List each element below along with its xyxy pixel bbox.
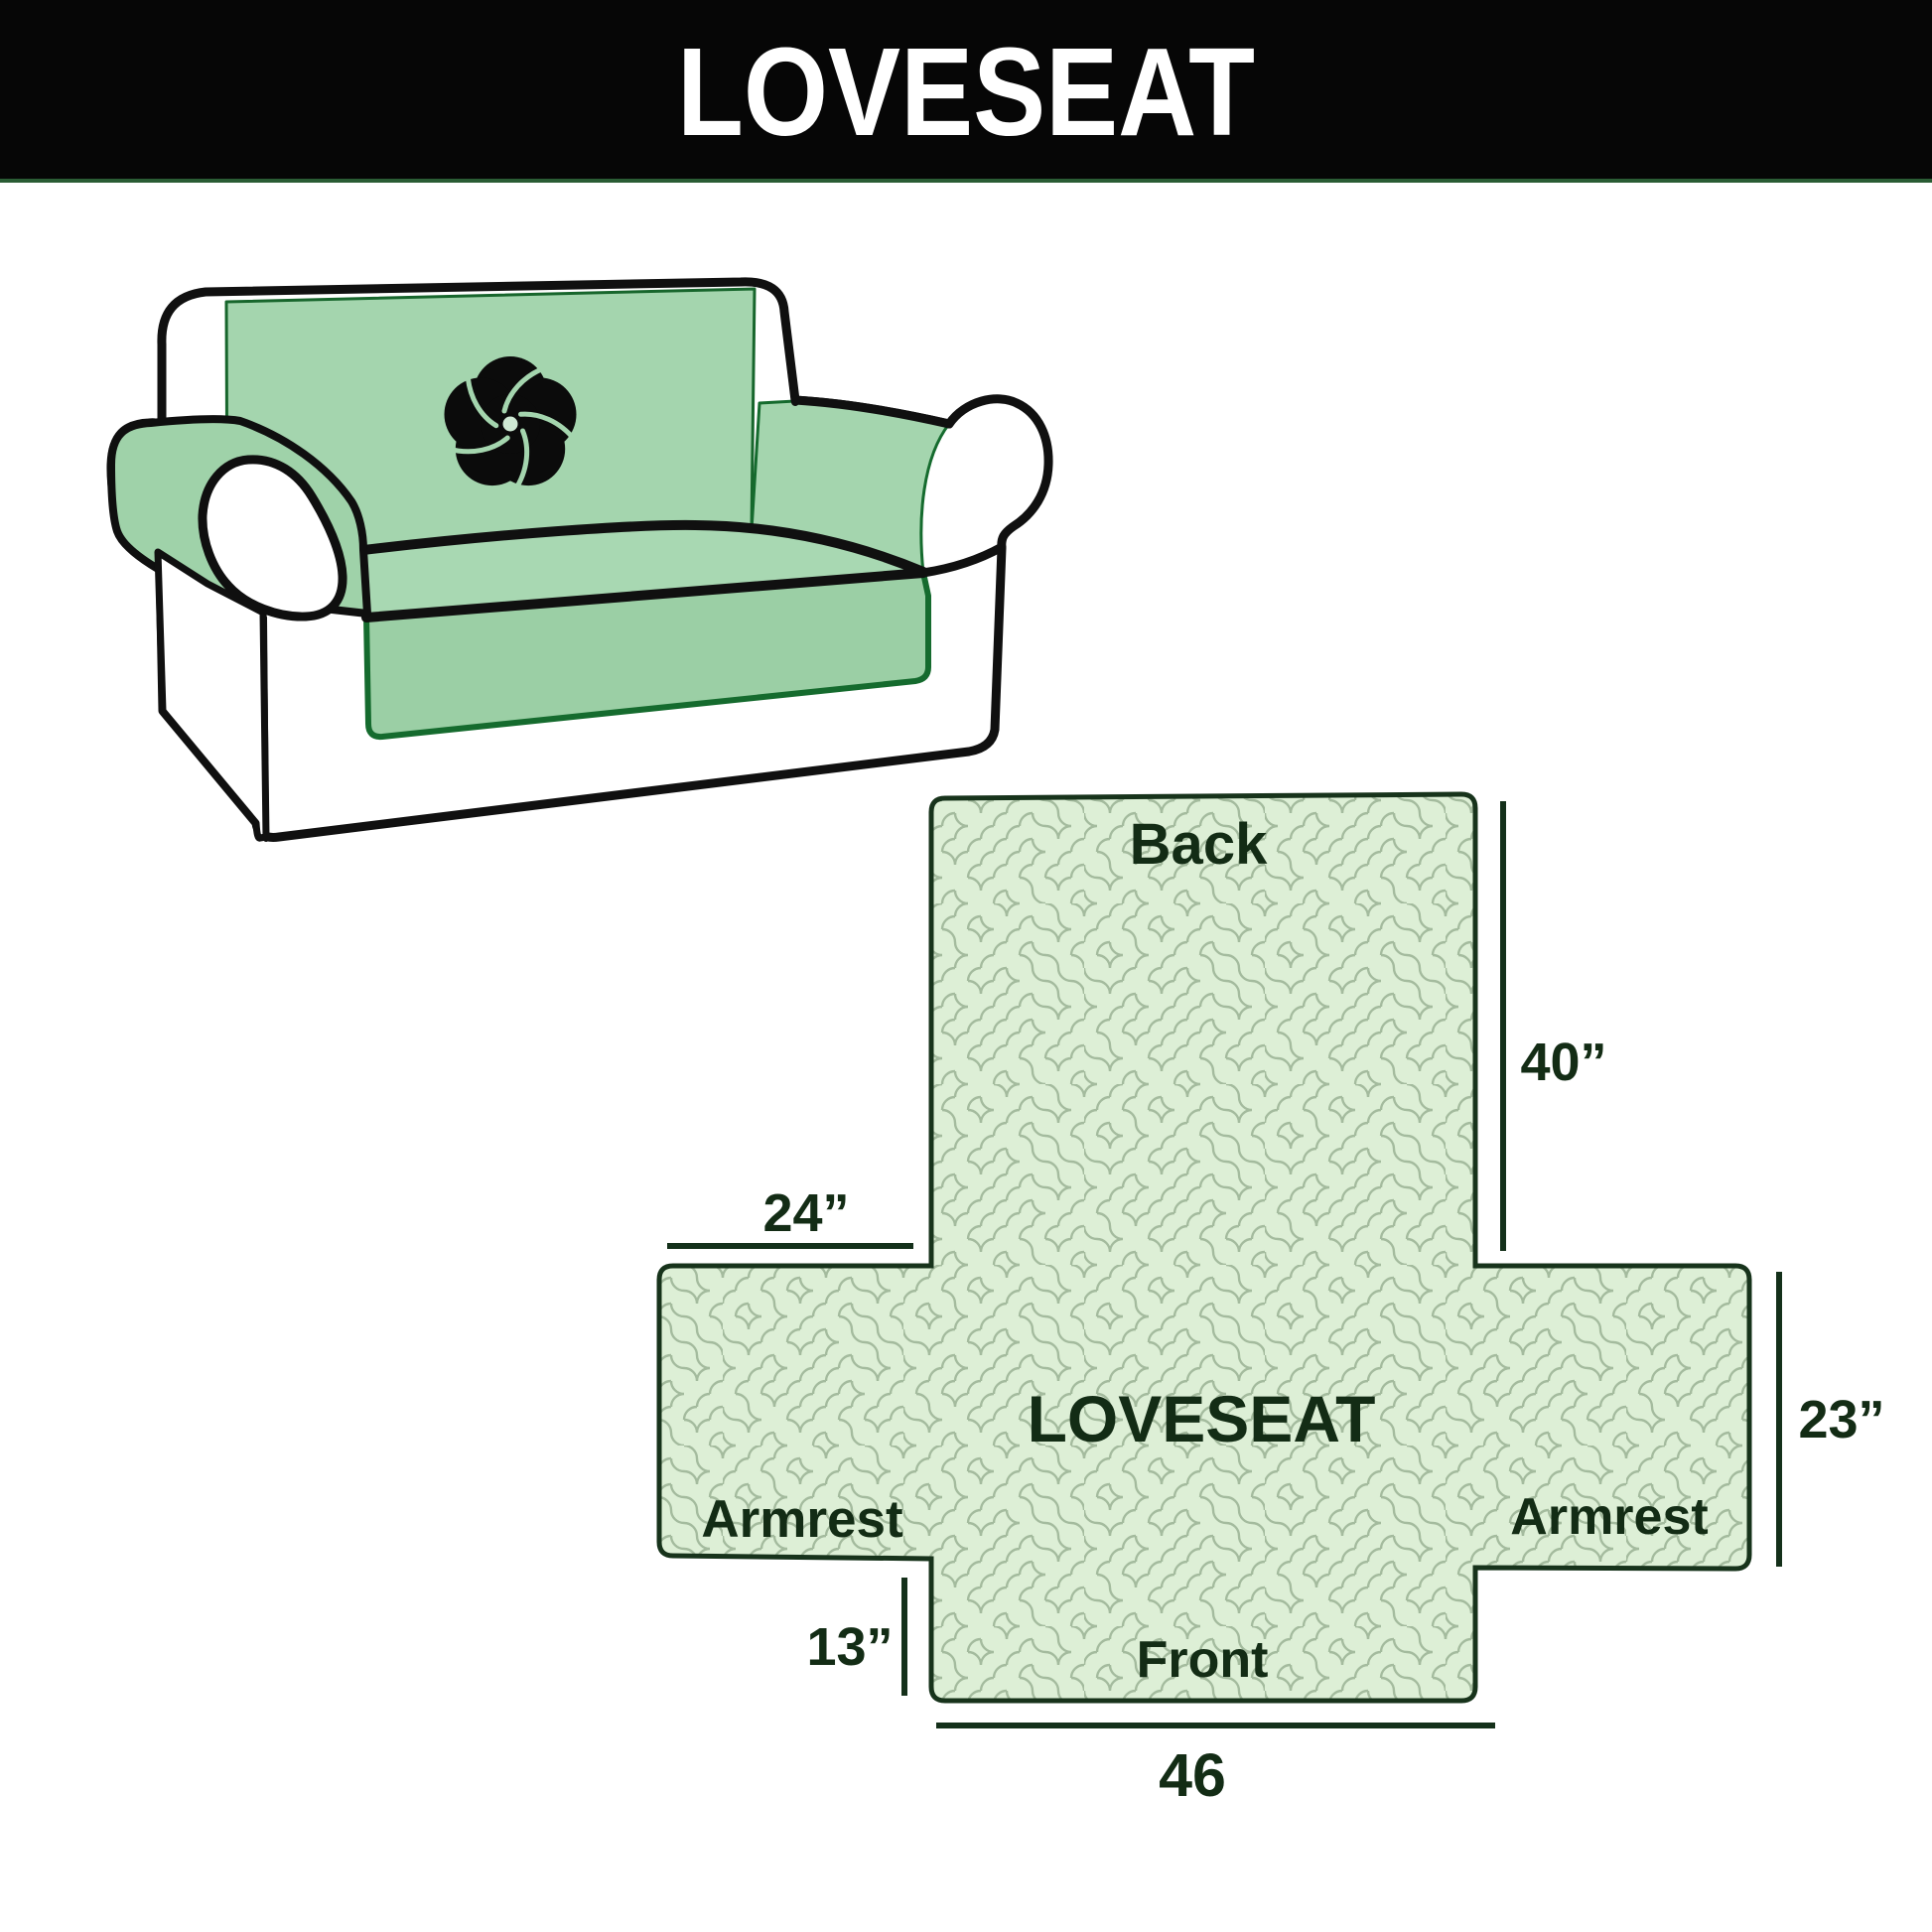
svg-text:46: 46: [1159, 1741, 1226, 1809]
svg-text:Armrest: Armrest: [701, 1490, 902, 1549]
svg-text:LOVESEAT: LOVESEAT: [677, 22, 1255, 162]
svg-text:24”: 24”: [762, 1183, 849, 1243]
svg-text:LOVESEAT: LOVESEAT: [1028, 1382, 1376, 1455]
svg-text:40”: 40”: [1520, 1033, 1606, 1092]
svg-text:23”: 23”: [1798, 1390, 1884, 1449]
svg-text:Back: Back: [1130, 812, 1268, 877]
svg-text:Armrest: Armrest: [1510, 1488, 1708, 1546]
svg-text:Front: Front: [1137, 1631, 1269, 1689]
svg-text:13”: 13”: [806, 1617, 893, 1677]
